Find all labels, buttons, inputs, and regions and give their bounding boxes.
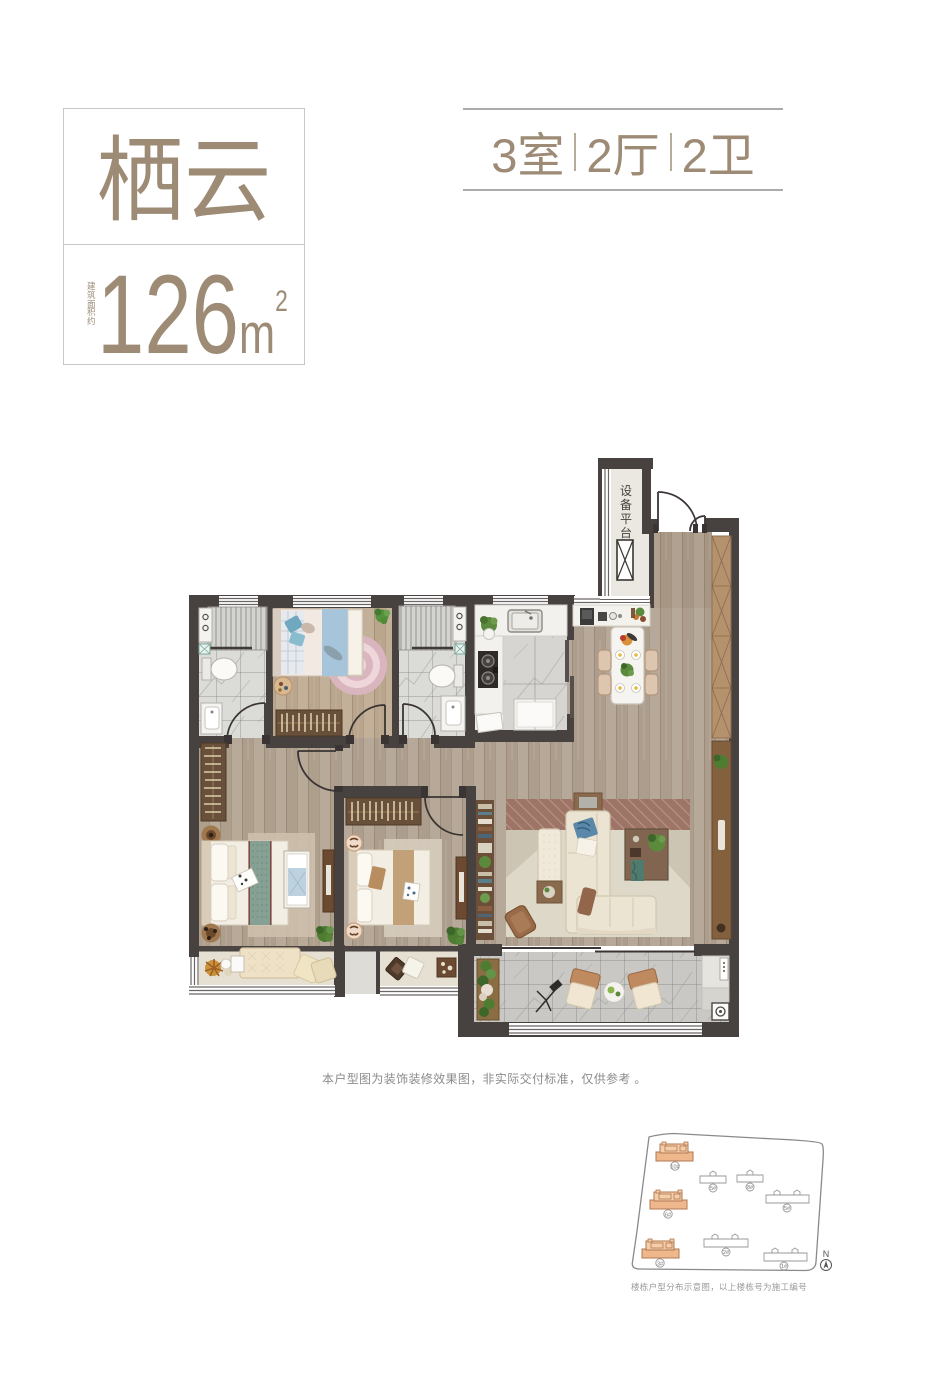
svg-text:台: 台	[620, 525, 632, 540]
svg-text:设: 设	[620, 484, 632, 498]
svg-text:2#: 2#	[723, 1250, 730, 1256]
svg-text:1#: 1#	[781, 1264, 788, 1270]
svg-text:8#: 8#	[747, 1185, 754, 1191]
svg-text:平: 平	[620, 512, 632, 526]
svg-text:3#: 3#	[657, 1261, 664, 1267]
svg-text:5#: 5#	[710, 1186, 717, 1192]
svg-text:10#: 10#	[670, 1164, 680, 1170]
svg-text:N: N	[823, 1249, 830, 1259]
svg-text:备: 备	[620, 498, 632, 512]
svg-text:6#: 6#	[665, 1212, 672, 1218]
svg-text:5#: 5#	[784, 1206, 791, 1212]
